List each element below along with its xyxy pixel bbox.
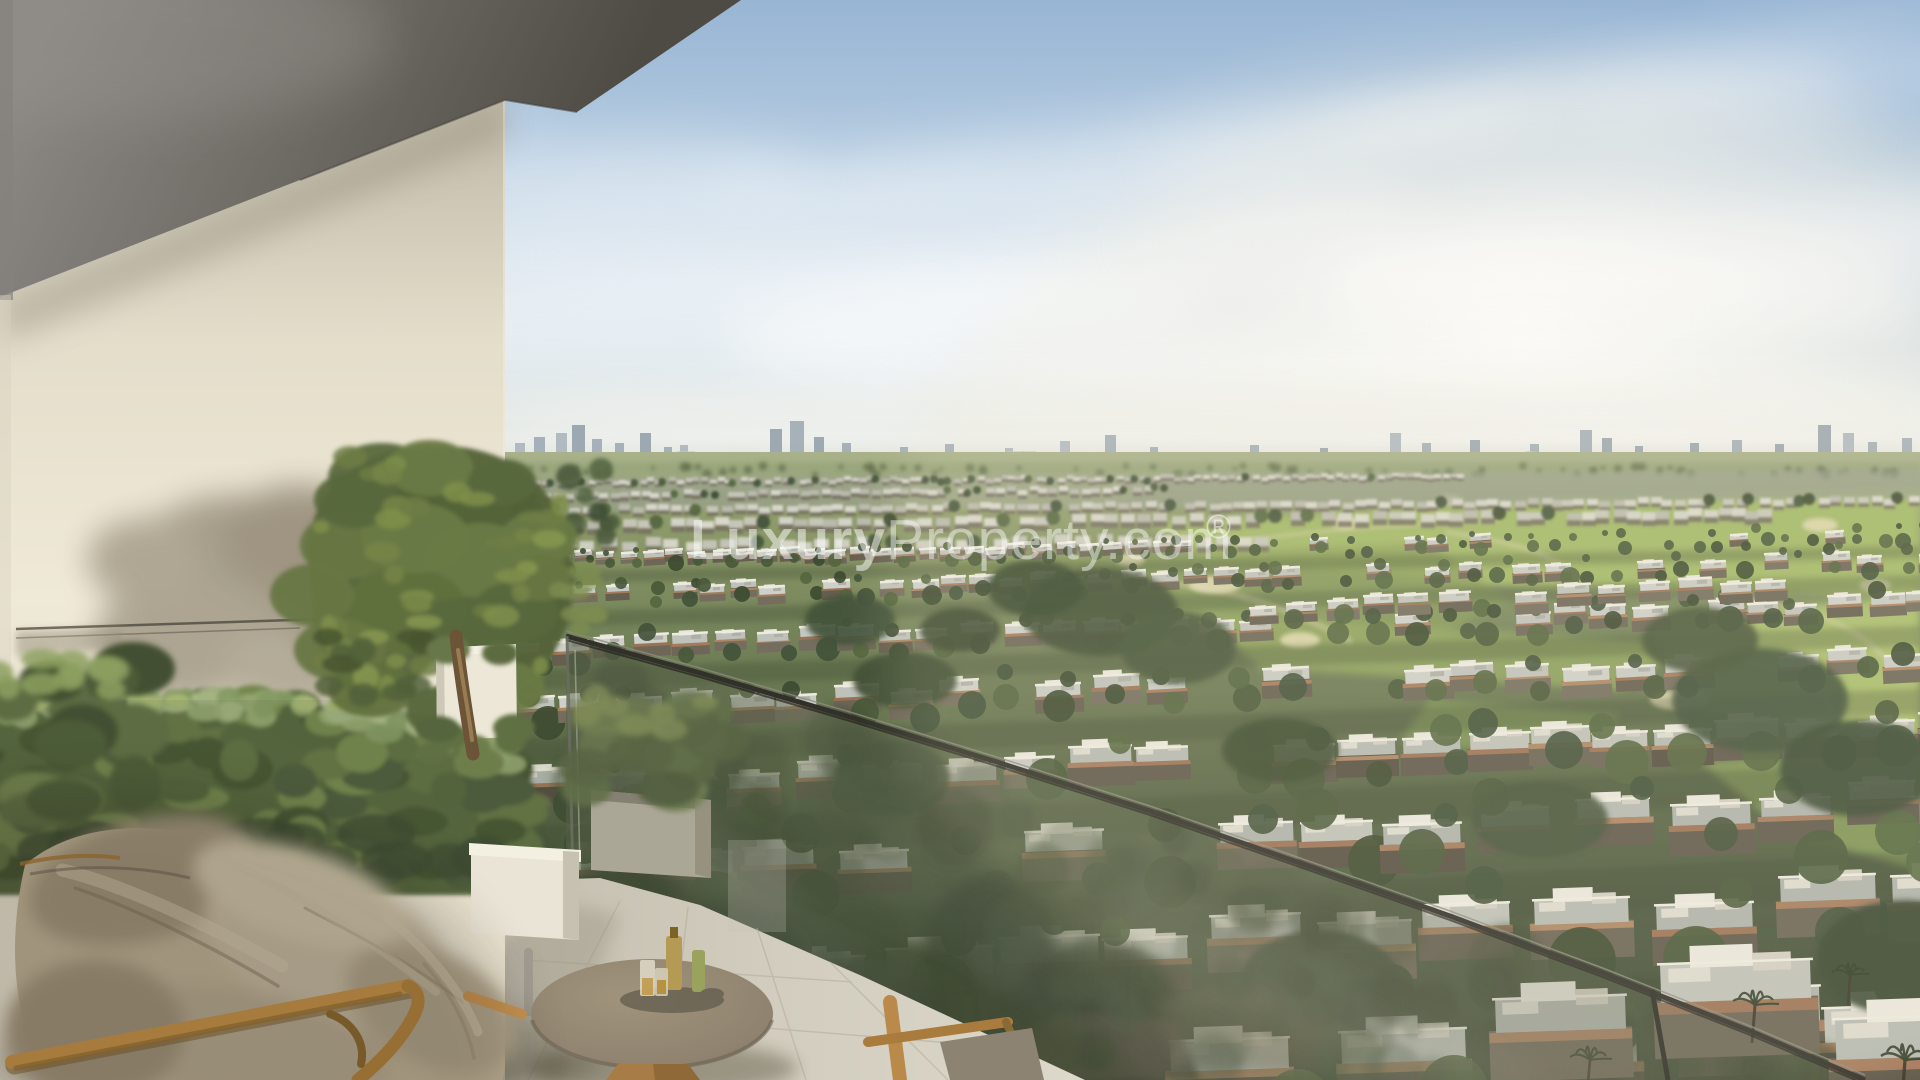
svg-text:LuxuryProperty.com: LuxuryProperty.com <box>690 508 1233 572</box>
svg-text:®: ® <box>1206 508 1231 546</box>
